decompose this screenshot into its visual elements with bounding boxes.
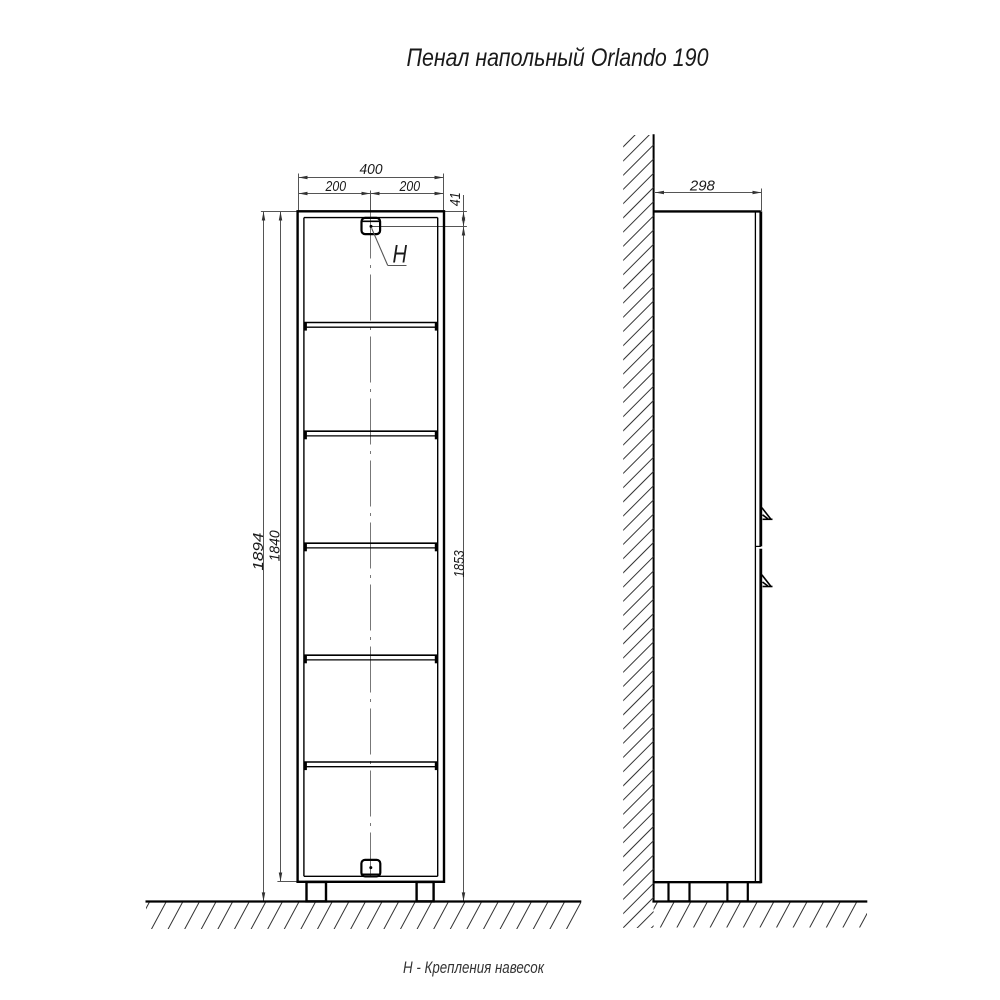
svg-text:H: H [393,241,408,269]
svg-text:298: 298 [689,178,715,194]
svg-text:200: 200 [399,179,420,195]
svg-text:400: 400 [360,162,383,178]
svg-text:1853: 1853 [451,550,468,578]
svg-text:1894: 1894 [250,533,267,571]
svg-text:1840: 1840 [267,530,284,562]
svg-text:Пенал напольный Orlando 190: Пенал напольный Orlando 190 [407,44,709,72]
svg-text:200: 200 [325,179,346,195]
svg-text:H - Крепления навесок: H - Крепления навесок [403,958,545,977]
svg-text:41: 41 [448,192,464,206]
